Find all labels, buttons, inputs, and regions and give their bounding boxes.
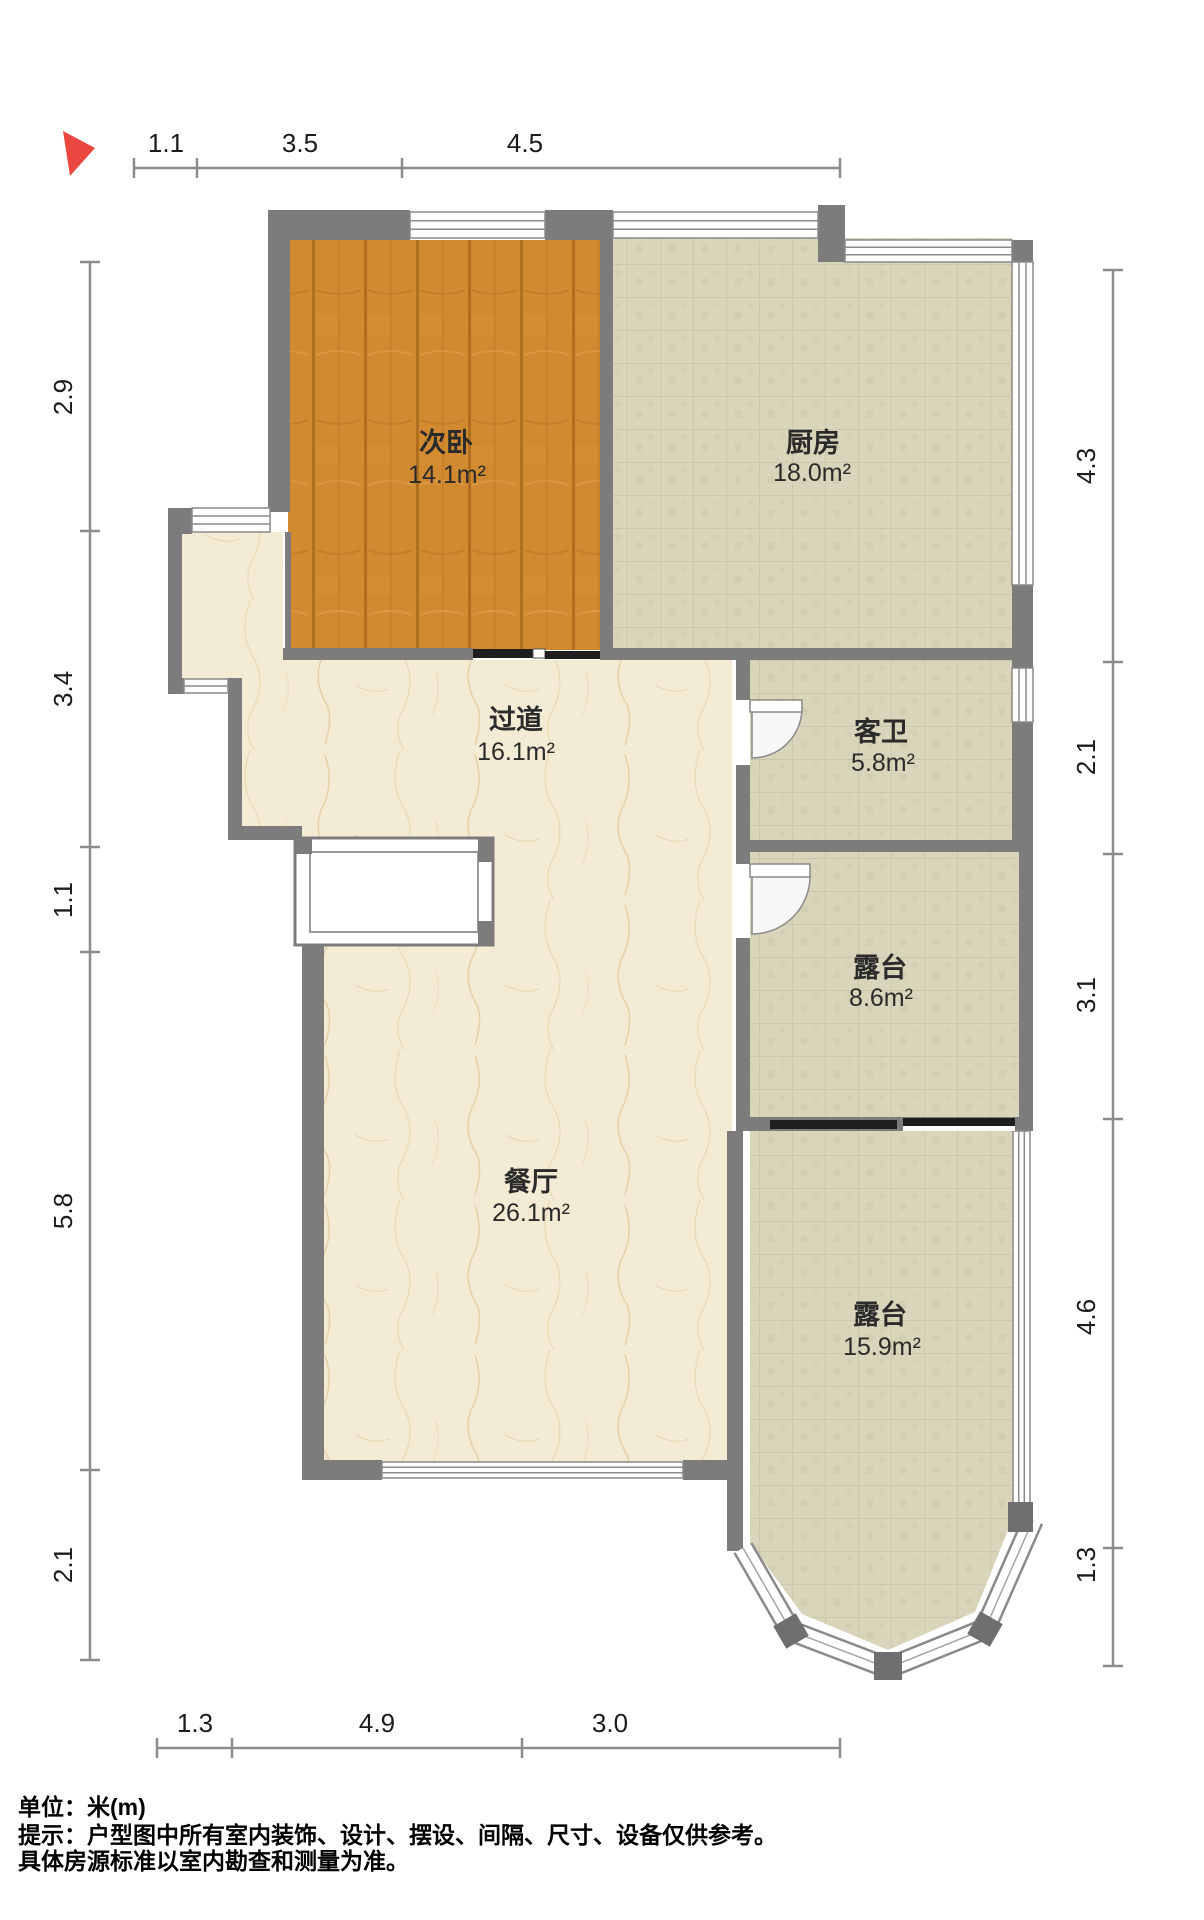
- wall-bedroom-left: [268, 210, 290, 512]
- wall-right-upper: [1012, 585, 1033, 668]
- dim-left-5: 2.1: [48, 1547, 78, 1583]
- dim-bottom-1: 1.3: [177, 1708, 213, 1738]
- wall-bedroom-kitchen-divider: [600, 240, 613, 660]
- wall-dining-left: [302, 945, 324, 1462]
- wall-right-terrace-upper: [1019, 852, 1033, 1117]
- window-terrace-lower-right: [1013, 1131, 1030, 1521]
- room-dining-name: 餐厅: [504, 1167, 558, 1197]
- wall-dining-terrace: [727, 1131, 743, 1551]
- terrace-divider-opening-left: [770, 1120, 897, 1129]
- room-bathroom-name: 客卫: [854, 716, 908, 747]
- wall-bedroom-bottom: [283, 648, 473, 660]
- wall-bathroom-terrace: [736, 840, 1033, 852]
- wall-top-corner-right: [1012, 240, 1033, 262]
- window-dining-bottom: [382, 1462, 683, 1478]
- dim-right-4: 4.6: [1071, 1299, 1101, 1335]
- footer-tip: 提示：户型图中所有室内装饰、设计、摆设、间隔、尺寸、设备仅供参考。: [18, 1822, 777, 1848]
- wall-top-bedroom: [270, 210, 410, 240]
- window-kitchen-top: [613, 212, 818, 238]
- floor-hallway-dining: [182, 532, 732, 1462]
- interior-void: [295, 838, 493, 945]
- dim-left-2: 3.4: [48, 671, 78, 707]
- dim-line-top: [134, 158, 840, 178]
- window-bedroom-top: [410, 212, 545, 238]
- room-bedroom-name: 次卧: [419, 428, 473, 458]
- room-dining-area: 26.1m²: [492, 1199, 570, 1227]
- room-kitchen-area: 18.0m²: [773, 459, 851, 487]
- room-terrace-lower-name: 露台: [853, 1299, 907, 1330]
- wall-kitchen-bottom: [613, 648, 1033, 660]
- dim-top-1: 1.1: [148, 128, 184, 158]
- dim-bottom-2: 4.9: [359, 1708, 395, 1738]
- window-hall-ext-bottom: [184, 679, 228, 693]
- dim-right-2: 2.1: [1071, 739, 1101, 775]
- room-terrace-upper-name: 露台: [853, 952, 907, 983]
- dim-right-1: 4.3: [1071, 448, 1101, 484]
- floorplan-page: 次卧 14.1m² 厨房 18.0m² 过道 16.1m² 客卫 5.8m² 露…: [0, 0, 1204, 1920]
- wall-dining-bottom-left: [302, 1460, 382, 1480]
- dim-top-2: 3.5: [282, 128, 318, 158]
- dim-left-3: 1.1: [48, 882, 78, 918]
- footer-unit: 单位：米(m): [18, 1794, 146, 1820]
- room-terrace-upper-area: 8.6m²: [849, 984, 913, 1012]
- dim-line-bottom: [157, 1738, 840, 1758]
- room-bathroom-area: 5.8m²: [851, 749, 915, 777]
- footer-tip-2: 具体房源标准以室内勘查和测量为准。: [18, 1848, 409, 1874]
- wall-top-post-right: [818, 205, 845, 262]
- room-terrace-lower-area: 15.9m²: [843, 1333, 921, 1361]
- compass-north-arrow-icon: [63, 131, 95, 176]
- dim-right-5: 1.3: [1071, 1547, 1101, 1583]
- wall-ext-bottom-end: [168, 678, 184, 694]
- wall-top-post-mid: [545, 210, 613, 240]
- floorplan-drawing: 次卧 14.1m² 厨房 18.0m² 过道 16.1m² 客卫 5.8m² 露…: [0, 0, 1204, 1920]
- footer-notes: 单位：米(m) 提示：户型图中所有室内装饰、设计、摆设、间隔、尺寸、设备仅供参考…: [18, 1794, 777, 1874]
- dim-left-4: 5.8: [48, 1193, 78, 1229]
- dim-line-left: [80, 262, 100, 1660]
- room-kitchen-name: 厨房: [786, 428, 840, 458]
- sliding-door-bedroom-left-panel: [473, 649, 533, 658]
- wall-step-horizontal: [228, 826, 302, 840]
- floor-terrace-lower: [750, 1131, 1013, 1650]
- dim-line-right: [1103, 270, 1123, 1666]
- terrace-divider-opening-right: [903, 1118, 1015, 1126]
- wall-ext-left: [168, 508, 182, 694]
- room-hallway-name: 过道: [489, 704, 543, 735]
- dim-bottom-3: 3.0: [592, 1708, 628, 1738]
- sliding-door-bedroom-right-panel: [545, 651, 600, 659]
- window-bathroom-right: [1012, 668, 1033, 722]
- wall-bedroom-left-thin: [285, 532, 291, 650]
- wall-dining-bottom-right: [683, 1460, 743, 1480]
- dim-left-1: 2.9: [48, 379, 78, 415]
- window-hall-ext-top: [192, 508, 270, 532]
- bay-post-4: [1008, 1502, 1033, 1532]
- wall-step-vertical: [228, 678, 242, 828]
- dim-right-3: 3.1: [1071, 977, 1101, 1013]
- window-kitchen-topright: [845, 240, 1012, 262]
- room-bedroom-area: 14.1m²: [408, 461, 486, 489]
- window-kitchen-right: [1012, 262, 1033, 585]
- bay-post-2: [874, 1652, 902, 1680]
- room-hallway-area: 16.1m²: [477, 738, 555, 766]
- dim-top-3: 4.5: [507, 128, 543, 158]
- wall-right-mid: [1012, 722, 1033, 852]
